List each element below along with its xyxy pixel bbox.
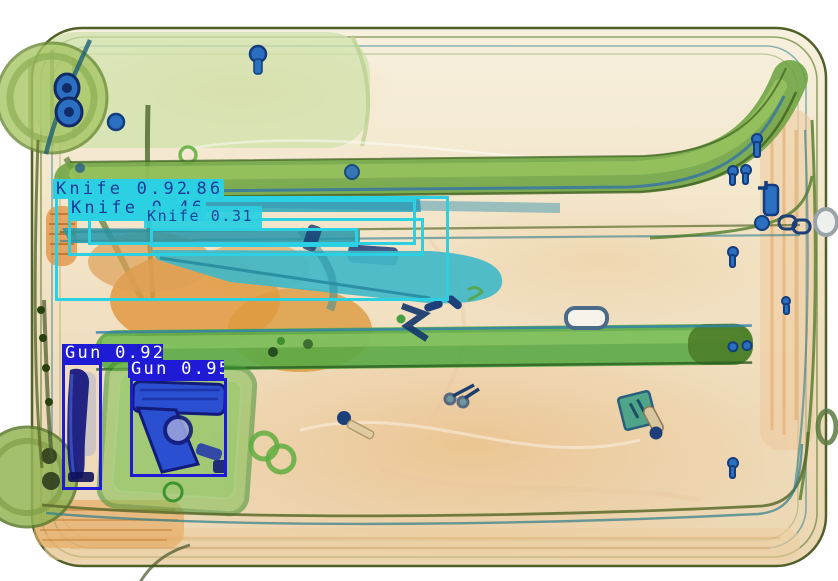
xray-scan-viewport: Knife 0.86 Knife 0.92 Knife 0.46 Knife 0…: [0, 0, 838, 581]
detection-label-knife-031: Knife 0.31: [144, 206, 262, 228]
xray-baggage-image: [0, 0, 838, 581]
detection-label-knife-092: Knife 0.92: [53, 179, 187, 199]
detection-label-gun-095: Gun 0.95: [128, 360, 224, 378]
strap-buckle: [566, 308, 607, 328]
